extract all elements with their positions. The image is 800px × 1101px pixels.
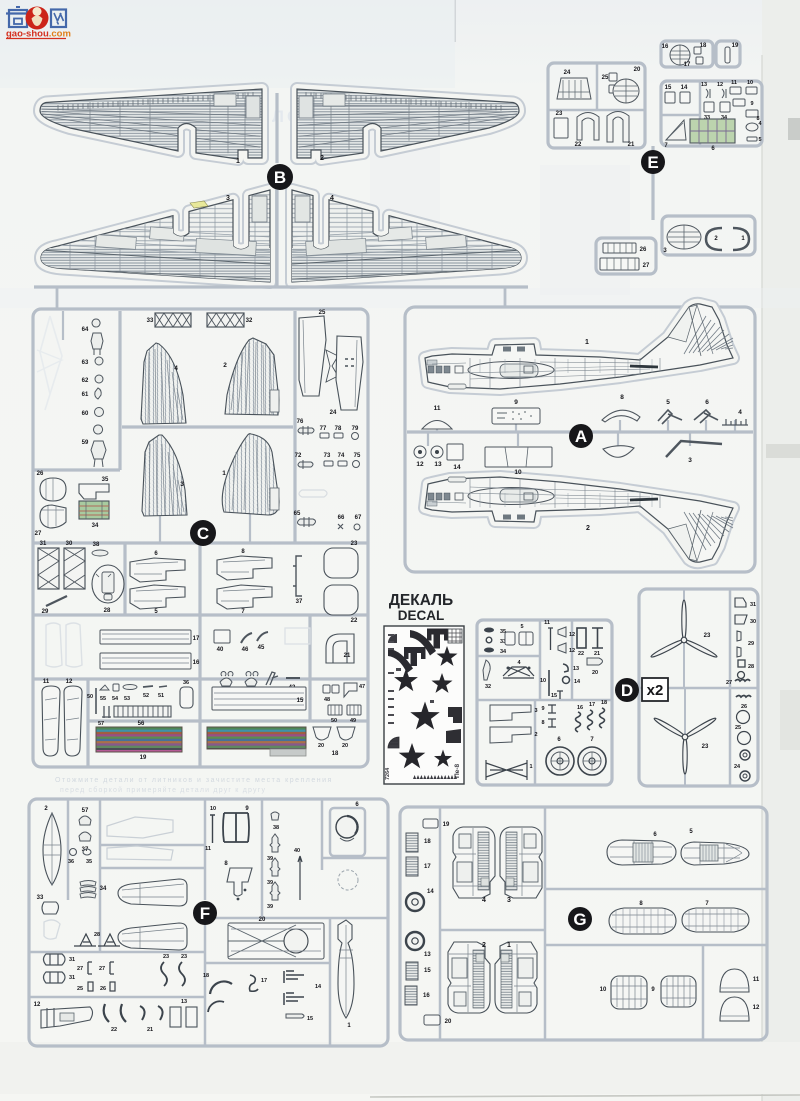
svg-text:17: 17 (684, 62, 691, 68)
svg-text:16: 16 (423, 993, 430, 999)
svg-text:21: 21 (628, 142, 635, 148)
svg-text:78: 78 (335, 426, 342, 432)
svg-text:75: 75 (354, 453, 361, 459)
svg-text:16: 16 (662, 44, 669, 50)
svg-text:25: 25 (735, 725, 741, 731)
svg-text:10: 10 (600, 987, 607, 993)
svg-text:57: 57 (98, 721, 104, 727)
svg-text:12: 12 (753, 1005, 760, 1011)
svg-text:77: 77 (320, 426, 327, 432)
svg-text:38: 38 (273, 825, 279, 831)
svg-text:35: 35 (102, 477, 109, 483)
svg-text:38: 38 (93, 542, 100, 548)
svg-text:1: 1 (507, 942, 511, 949)
svg-text:10: 10 (514, 469, 522, 476)
svg-text:24: 24 (564, 70, 571, 76)
svg-text:79: 79 (352, 426, 359, 432)
svg-text:50: 50 (331, 718, 337, 724)
svg-text:60: 60 (82, 411, 89, 417)
svg-text:2: 2 (223, 362, 227, 369)
svg-text:3: 3 (180, 481, 184, 488)
svg-text:23: 23 (556, 111, 563, 117)
svg-text:17: 17 (193, 636, 200, 642)
svg-text:27: 27 (35, 531, 42, 537)
svg-text:1: 1 (222, 470, 226, 477)
svg-text:17: 17 (261, 978, 267, 984)
svg-text:10: 10 (210, 806, 216, 812)
svg-text:4: 4 (330, 195, 334, 202)
svg-text:3: 3 (507, 897, 511, 904)
svg-text:34: 34 (100, 886, 107, 892)
svg-text:перед сборкой примеряйте детал: перед сборкой примеряйте детали друг к д… (60, 786, 266, 794)
svg-text:18: 18 (424, 839, 431, 845)
svg-text:x2: x2 (647, 682, 664, 699)
svg-text:40: 40 (294, 848, 300, 854)
svg-text:20: 20 (259, 917, 266, 923)
svg-text:29: 29 (748, 641, 754, 647)
svg-text:52: 52 (143, 693, 149, 699)
svg-text:47: 47 (359, 684, 365, 690)
svg-text:17: 17 (424, 864, 431, 870)
svg-text:10: 10 (747, 80, 753, 86)
svg-text:23: 23 (702, 744, 709, 750)
svg-text:20: 20 (318, 743, 324, 749)
svg-text:59: 59 (82, 440, 89, 446)
svg-text:24: 24 (734, 764, 741, 770)
svg-text:9: 9 (514, 399, 518, 406)
svg-text:25: 25 (319, 310, 326, 316)
svg-text:Отожмите детали от литников и: Отожмите детали от литников и зачистите … (55, 777, 333, 784)
svg-text:31: 31 (69, 975, 75, 981)
svg-text:61: 61 (82, 392, 89, 398)
svg-text:23: 23 (704, 633, 711, 639)
svg-text:19: 19 (443, 822, 450, 828)
svg-text:13: 13 (434, 461, 442, 468)
svg-text:23: 23 (351, 541, 358, 547)
svg-text:28: 28 (94, 932, 100, 938)
svg-text:45: 45 (258, 645, 265, 651)
svg-text:27: 27 (99, 966, 105, 972)
svg-text:14: 14 (315, 984, 322, 990)
svg-text:31: 31 (750, 602, 756, 608)
svg-text:F: F (200, 904, 210, 923)
svg-text:7264: 7264 (385, 767, 391, 780)
svg-text:26: 26 (100, 986, 106, 992)
svg-text:C: C (197, 524, 209, 543)
svg-text:64: 64 (82, 327, 89, 333)
svg-text:11: 11 (434, 405, 441, 412)
svg-text:26: 26 (741, 704, 747, 710)
svg-text:B: B (274, 168, 286, 187)
svg-text:ДЕКАЛЬ: ДЕКАЛЬ (389, 592, 453, 609)
svg-text:30: 30 (66, 541, 73, 547)
svg-text:34: 34 (92, 523, 99, 529)
svg-text:4: 4 (482, 897, 486, 904)
svg-text:1: 1 (236, 158, 240, 165)
svg-text:22: 22 (111, 1027, 117, 1033)
svg-text:9: 9 (541, 706, 544, 712)
svg-text:16: 16 (577, 705, 583, 711)
svg-text:5: 5 (666, 399, 670, 406)
svg-text:26: 26 (37, 471, 44, 477)
svg-text:15: 15 (424, 968, 431, 974)
svg-text:20: 20 (592, 670, 598, 676)
svg-text:24: 24 (330, 410, 337, 416)
svg-text:22: 22 (578, 651, 584, 657)
svg-text:40: 40 (217, 647, 224, 653)
svg-text:DECAL: DECAL (398, 608, 445, 623)
svg-text:11: 11 (544, 620, 550, 626)
svg-text:3: 3 (688, 457, 692, 464)
svg-text:12: 12 (34, 1002, 41, 1008)
svg-text:18: 18 (203, 973, 209, 979)
svg-text:4: 4 (174, 365, 178, 372)
svg-text:18: 18 (601, 700, 607, 706)
svg-text:6: 6 (705, 399, 709, 406)
svg-text:15: 15 (665, 85, 672, 91)
svg-text:33: 33 (147, 318, 154, 324)
svg-text:3: 3 (226, 195, 230, 202)
svg-text:54: 54 (112, 696, 119, 702)
svg-text:20: 20 (445, 1019, 452, 1025)
svg-text:15: 15 (297, 698, 304, 704)
svg-text:10: 10 (540, 678, 546, 684)
svg-text:14: 14 (681, 85, 688, 91)
svg-text:11: 11 (731, 80, 737, 86)
svg-text:9: 9 (750, 101, 753, 107)
svg-text:15: 15 (307, 1016, 313, 1022)
svg-text:48: 48 (324, 697, 330, 703)
svg-text:12: 12 (66, 679, 73, 685)
svg-text:11: 11 (43, 679, 50, 685)
svg-text:50: 50 (87, 694, 93, 700)
svg-text:27: 27 (726, 680, 732, 686)
svg-text:8: 8 (620, 394, 624, 401)
svg-text:39: 39 (267, 856, 273, 862)
svg-text:5: 5 (520, 624, 523, 630)
svg-text:23: 23 (181, 954, 187, 960)
svg-text:66: 66 (338, 515, 345, 521)
svg-text:62: 62 (82, 378, 89, 384)
svg-text:30: 30 (750, 619, 756, 625)
svg-text:26: 26 (640, 247, 647, 253)
svg-text:2: 2 (586, 525, 590, 532)
svg-text:E: E (647, 153, 658, 172)
svg-text:19: 19 (732, 43, 739, 49)
svg-text:27: 27 (77, 966, 83, 972)
svg-text:12: 12 (416, 461, 424, 468)
svg-text:19: 19 (140, 755, 147, 761)
svg-text:46: 46 (242, 647, 249, 653)
svg-text:17: 17 (589, 702, 595, 708)
svg-text:2: 2 (534, 732, 537, 738)
svg-text:22: 22 (351, 618, 358, 624)
svg-text:56: 56 (138, 721, 145, 727)
svg-text:28: 28 (748, 664, 754, 670)
svg-text:G: G (573, 910, 586, 929)
svg-text:72: 72 (295, 453, 302, 459)
svg-text:31: 31 (40, 541, 47, 547)
svg-text:21: 21 (147, 1027, 153, 1033)
svg-text:53: 53 (124, 696, 130, 702)
svg-text:35: 35 (86, 859, 92, 865)
svg-text:25: 25 (77, 986, 83, 992)
svg-text:63: 63 (82, 360, 89, 366)
svg-text:D: D (621, 681, 633, 700)
svg-text:51: 51 (158, 693, 164, 699)
svg-text:3: 3 (534, 708, 537, 714)
svg-text:21: 21 (594, 651, 600, 657)
svg-text:37: 37 (296, 599, 303, 605)
svg-text:27: 27 (643, 263, 650, 269)
svg-text:20: 20 (342, 743, 348, 749)
svg-text:11: 11 (205, 846, 211, 852)
svg-text:76: 76 (297, 419, 304, 425)
svg-text:13: 13 (424, 952, 431, 958)
svg-text:1: 1 (585, 339, 589, 346)
svg-text:31: 31 (69, 957, 75, 963)
svg-text:25: 25 (602, 75, 609, 81)
svg-text:74: 74 (338, 453, 345, 459)
svg-text:4: 4 (738, 409, 742, 416)
svg-text:49: 49 (350, 718, 356, 724)
svg-text:13: 13 (701, 82, 707, 88)
svg-text:16: 16 (193, 660, 200, 666)
svg-text:32: 32 (485, 684, 491, 690)
svg-text:15: 15 (551, 693, 557, 699)
svg-text:65: 65 (294, 511, 301, 517)
svg-text:2: 2 (482, 942, 486, 949)
svg-text:11: 11 (753, 977, 760, 983)
svg-text:18: 18 (332, 751, 339, 757)
svg-text:39: 39 (267, 880, 273, 886)
svg-text:36: 36 (68, 859, 74, 865)
svg-text:55: 55 (100, 696, 106, 702)
svg-text:23: 23 (163, 954, 169, 960)
svg-text:34: 34 (500, 649, 507, 655)
svg-text:5: 5 (758, 137, 761, 143)
svg-text:29: 29 (42, 609, 49, 615)
svg-text:14: 14 (453, 464, 461, 471)
svg-text:67: 67 (355, 515, 362, 521)
svg-text:14: 14 (427, 889, 434, 895)
svg-text:A: A (575, 427, 587, 446)
svg-text:57: 57 (82, 808, 89, 814)
svg-text:32: 32 (246, 318, 253, 324)
svg-text:12: 12 (717, 82, 723, 88)
svg-text:12: 12 (569, 632, 575, 638)
svg-text:22: 22 (575, 142, 582, 148)
svg-text:21: 21 (344, 653, 351, 659)
svg-text:20: 20 (634, 67, 641, 73)
svg-text:8: 8 (541, 720, 544, 726)
svg-text:36: 36 (183, 680, 189, 686)
svg-text:33: 33 (37, 895, 44, 901)
svg-text:13: 13 (573, 666, 579, 672)
svg-text:73: 73 (324, 453, 331, 459)
svg-text:12: 12 (569, 648, 575, 654)
svg-text:14: 14 (574, 679, 581, 685)
svg-text:1: 1 (529, 764, 532, 770)
svg-text:39: 39 (267, 904, 273, 910)
svg-text:13: 13 (181, 999, 187, 1005)
svg-text:Пе-8: Пе-8 (454, 764, 461, 778)
svg-text:2: 2 (320, 155, 324, 162)
svg-text:28: 28 (104, 608, 111, 614)
